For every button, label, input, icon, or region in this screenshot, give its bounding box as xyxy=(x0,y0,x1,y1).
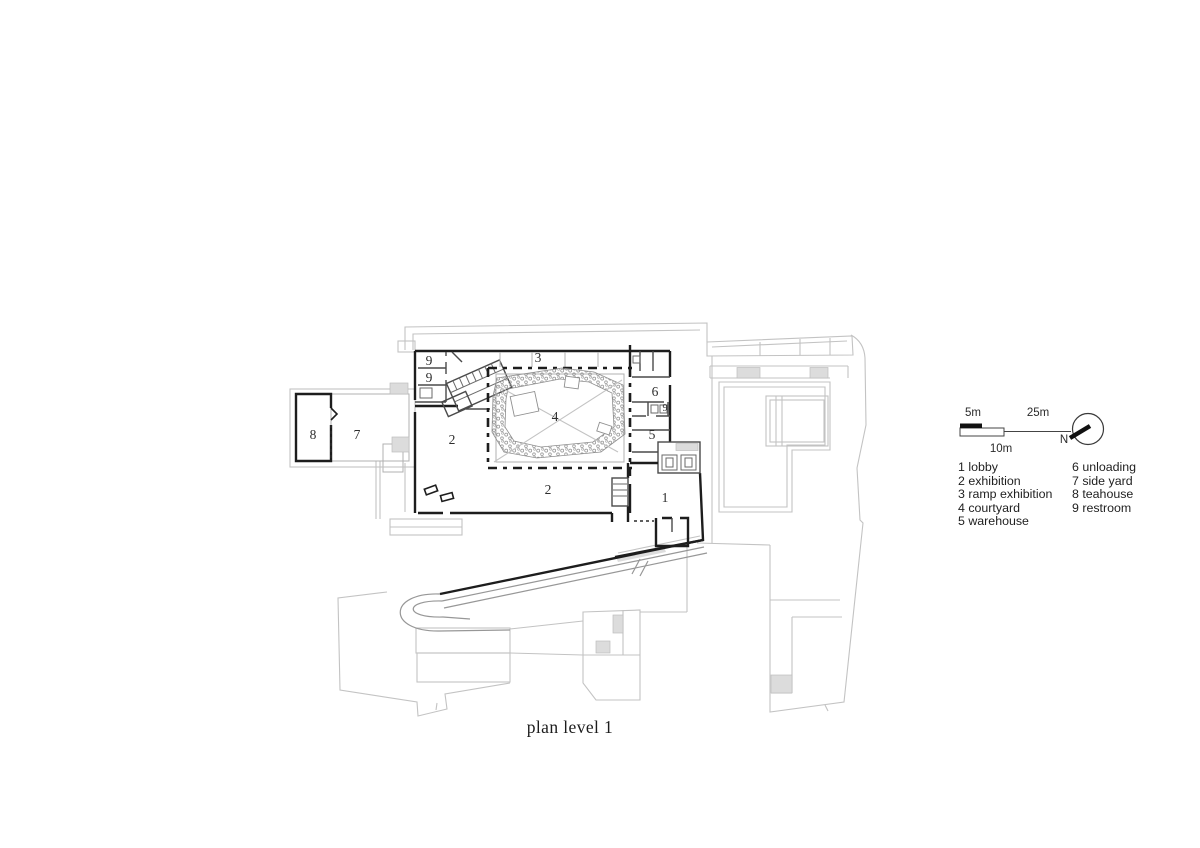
lobby xyxy=(612,463,688,546)
room-label-restroom-c: 9 xyxy=(663,403,668,414)
left-wing xyxy=(290,383,415,467)
room-label-restroom-b: 9 xyxy=(426,370,433,385)
room-label-restroom-a: 9 xyxy=(426,353,433,368)
room-label-lobby: 1 xyxy=(662,490,669,505)
legend-item-warehouse: 5 warehouse xyxy=(958,515,1052,529)
exhibit-pedestals xyxy=(424,485,453,501)
scale-5m-label: 5m xyxy=(965,407,981,419)
main-building xyxy=(415,345,703,557)
legend-item-teahouse: 8 teahouse xyxy=(1072,488,1136,502)
scale-25m-label: 25m xyxy=(1027,407,1049,419)
room-label-exhibition-west: 2 xyxy=(449,432,456,447)
room-label-ramp-exhibition: 3 xyxy=(535,350,542,365)
north-arrow-icon: N xyxy=(1060,414,1104,447)
ramp-exhibition-band xyxy=(500,352,598,367)
reception-desk xyxy=(612,478,628,506)
room-label-teahouse: 8 xyxy=(310,427,317,442)
room-label-courtyard: 4 xyxy=(552,409,559,424)
scale-bar: 5m 25m 10m xyxy=(960,407,1071,455)
legend-item-ramp-exhibition: 3 ramp exhibition xyxy=(958,488,1052,502)
north-label: N xyxy=(1060,434,1068,446)
legend-column-2: 6 unloading 7 side yard 8 teahouse 9 res… xyxy=(1072,461,1136,515)
legend-item-courtyard: 4 courtyard xyxy=(958,502,1052,516)
room-label-warehouse: 5 xyxy=(649,427,656,442)
courtyard-pebble-band xyxy=(492,368,625,462)
plan-caption: plan level 1 xyxy=(450,717,690,738)
legend-item-restroom: 9 restroom xyxy=(1072,502,1136,516)
elevator-block xyxy=(658,442,700,473)
room-label-unloading: 6 xyxy=(652,384,659,399)
room-label-side-yard: 7 xyxy=(354,427,361,442)
legend-item-side-yard: 7 side yard xyxy=(1072,475,1136,489)
legend-item-lobby: 1 lobby xyxy=(958,461,1052,475)
scale-10m-bar xyxy=(960,428,1004,436)
scale-10m-label: 10m xyxy=(990,443,1012,455)
legend-item-unloading: 6 unloading xyxy=(1072,461,1136,475)
legend-item-exhibition: 2 exhibition xyxy=(958,475,1052,489)
canvas: 9 9 3 4 2 2 6 9 5 1 8 7 5m 25m 10m N 1 l… xyxy=(0,0,1200,848)
entry-ramp xyxy=(400,536,707,631)
scale-5m-bar xyxy=(960,424,982,429)
legend-column-1: 1 lobby 2 exhibition 3 ramp exhibition 4… xyxy=(958,461,1052,529)
room-label-exhibition-south: 2 xyxy=(545,482,552,497)
